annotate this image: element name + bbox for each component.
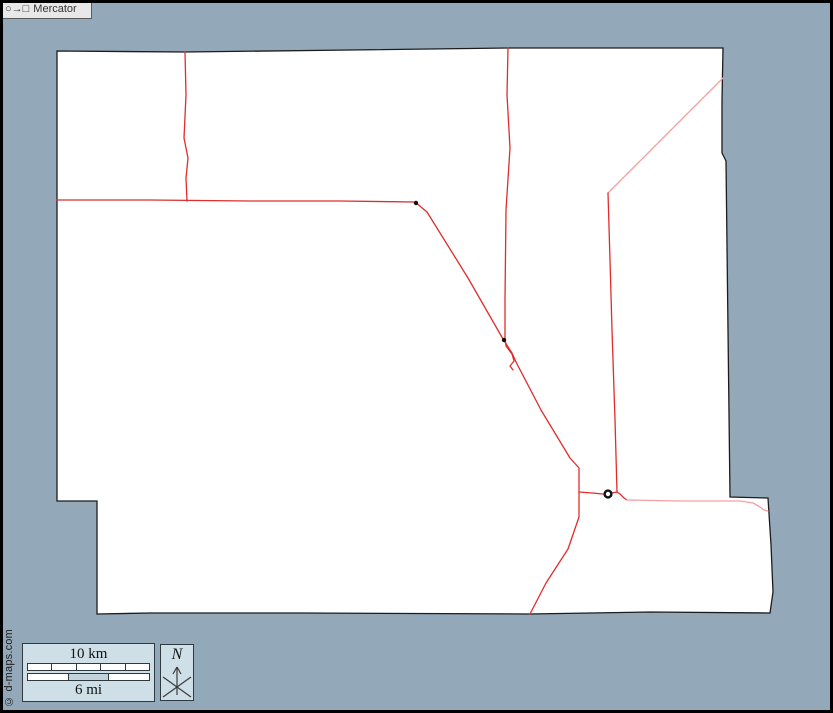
scale-segment	[101, 664, 125, 670]
scale-bar-box: 10 km 6 mi	[22, 643, 155, 702]
scale-segment	[109, 674, 149, 680]
junction-dot	[414, 201, 418, 205]
junction-dot	[502, 338, 506, 342]
north-label: N	[172, 646, 183, 664]
scale-segment	[77, 664, 101, 670]
city-marker-icon	[605, 491, 612, 498]
scale-segment	[28, 674, 69, 680]
scale-mi-label: 6 mi	[75, 682, 102, 698]
scale-segment	[28, 664, 52, 670]
north-arrow-box: N	[160, 644, 194, 701]
scale-segment	[52, 664, 76, 670]
scale-km-label: 10 km	[70, 646, 108, 662]
map-page: 10 km 6 mi N ○→□ Mercator © d-maps.com	[0, 0, 833, 713]
scale-mi-bar-icon	[27, 673, 150, 681]
map-svg	[0, 0, 833, 713]
scale-segment	[69, 674, 110, 680]
map-outline-group	[57, 48, 773, 614]
north-arrow-icon	[161, 664, 193, 700]
scale-km-bar-icon	[27, 663, 150, 671]
scale-segment	[126, 664, 149, 670]
copyright-text: © d-maps.com	[3, 629, 15, 707]
